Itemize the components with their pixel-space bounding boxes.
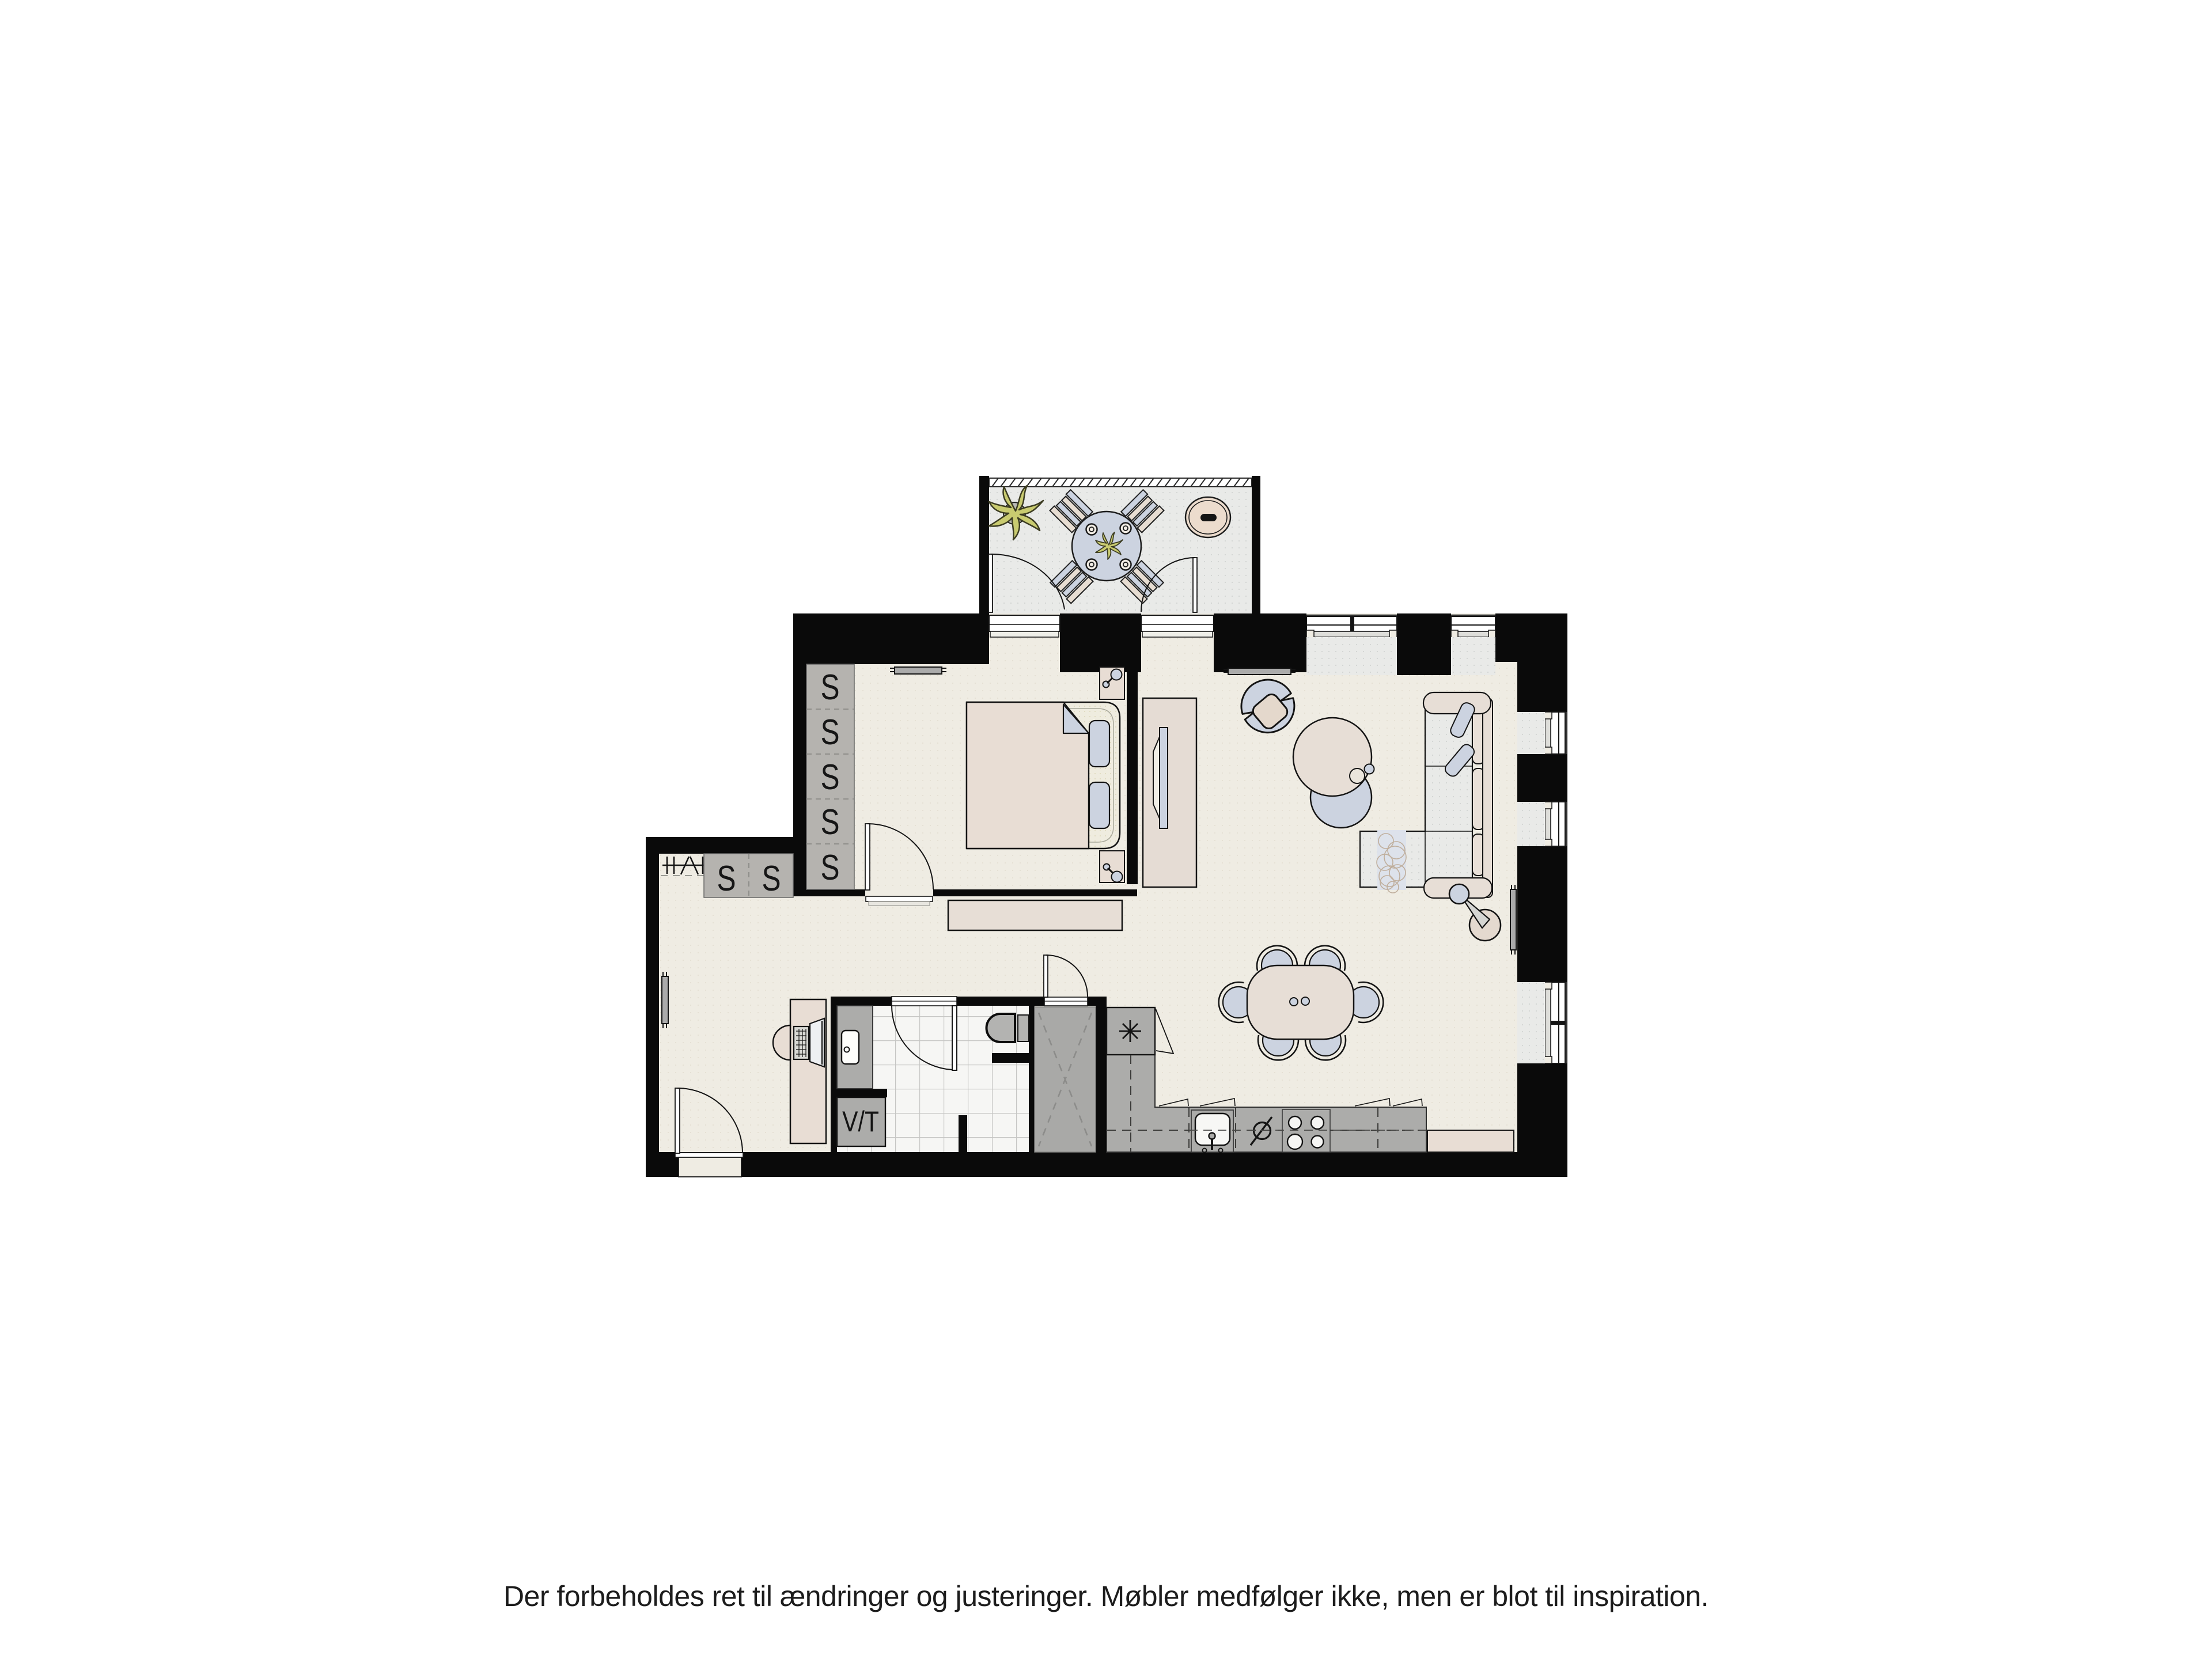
- svg-text:S: S: [820, 757, 839, 797]
- svg-text:S: S: [820, 802, 839, 842]
- svg-text:S: S: [717, 858, 736, 899]
- svg-text:S: S: [820, 847, 839, 888]
- svg-text:S: S: [820, 667, 839, 707]
- svg-text:S: S: [820, 712, 839, 752]
- svg-text:S: S: [762, 858, 781, 899]
- svg-text:V/T: V/T: [842, 1105, 879, 1138]
